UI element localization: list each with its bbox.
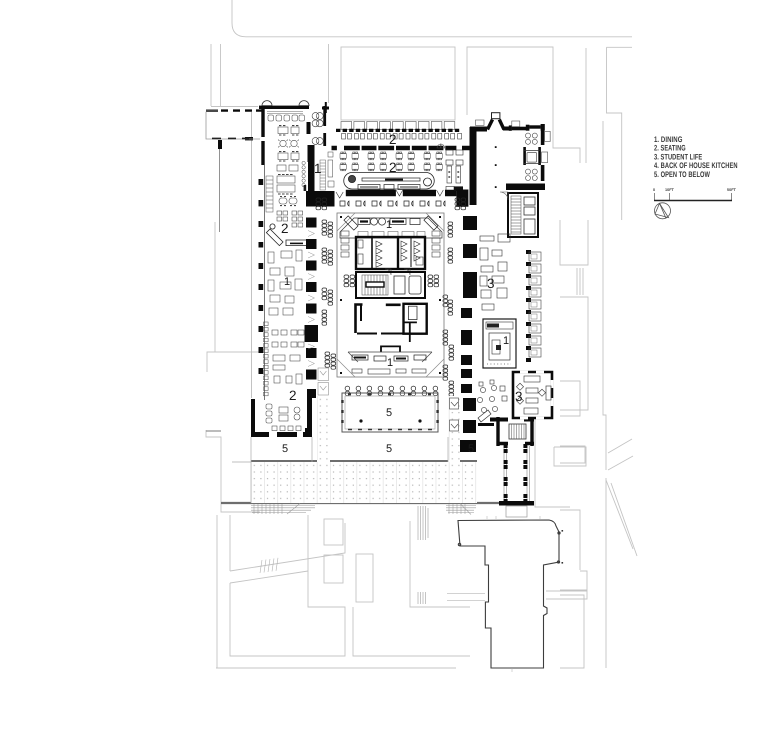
svg-text:5: 5 xyxy=(386,407,392,419)
svg-text:0: 0 xyxy=(653,188,655,192)
svg-text:1: 1 xyxy=(387,357,393,369)
svg-text:2: 2 xyxy=(289,388,297,403)
svg-text:4. BACK OF HOUSE KITCHEN: 4. BACK OF HOUSE KITCHEN xyxy=(654,161,738,170)
svg-text:3: 3 xyxy=(515,389,523,404)
svg-text:5. OPEN TO BELOW: 5. OPEN TO BELOW xyxy=(654,170,710,179)
svg-text:1: 1 xyxy=(284,276,290,288)
svg-text:2. SEATING: 2. SEATING xyxy=(654,144,686,153)
svg-text:2: 2 xyxy=(389,132,397,147)
svg-text:5: 5 xyxy=(468,443,474,455)
svg-text:3: 3 xyxy=(487,276,495,291)
svg-text:1. DINING: 1. DINING xyxy=(654,135,683,144)
svg-text:2: 2 xyxy=(281,221,289,236)
svg-text:5: 5 xyxy=(386,443,392,455)
svg-text:5: 5 xyxy=(282,443,288,455)
svg-text:1: 1 xyxy=(386,219,392,231)
svg-text:3. STUDENT LIFE: 3. STUDENT LIFE xyxy=(654,152,703,161)
svg-text:1: 1 xyxy=(503,335,509,347)
svg-text:10FT: 10FT xyxy=(665,188,675,192)
svg-text:50FT: 50FT xyxy=(727,188,737,192)
svg-text:1: 1 xyxy=(314,161,322,176)
